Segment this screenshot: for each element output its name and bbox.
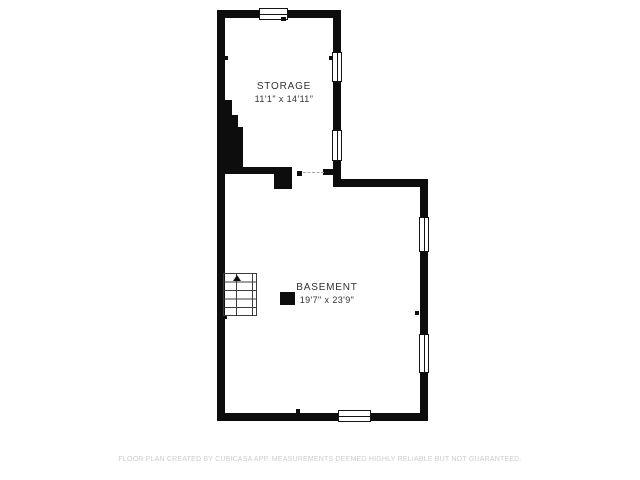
storage-room-dimensions: 11'1" x 14'11"	[224, 94, 344, 104]
storage-room-name: STORAGE	[224, 82, 344, 92]
disclaimer-text: FLOOR PLAN CREATED BY CUBICASA APP. MEAS…	[0, 456, 640, 463]
storage-room-label: STORAGE 11'1" x 14'11"	[224, 82, 344, 104]
wall-tick-left	[225, 56, 228, 60]
basement-window-right-upper-icon	[419, 217, 429, 252]
wall-basement-top	[333, 179, 428, 187]
wall-tick-bottom	[296, 409, 300, 413]
floor-plan: STORAGE 11'1" x 14'11" BASEMENT 19'7" x …	[0, 0, 640, 480]
chimney-step-1	[225, 100, 232, 167]
basement-room-dimensions: 19'7" x 23'9"	[267, 295, 387, 305]
wall-door-end-cap	[323, 169, 333, 175]
stairs-right-edge-line	[252, 274, 253, 315]
wall-left	[217, 10, 225, 421]
wall-tick-storage-right	[329, 56, 333, 60]
wall-storage-bottom	[217, 167, 275, 174]
wall-basement-bottom	[217, 413, 428, 421]
basement-window-bottom-icon	[338, 410, 371, 422]
chimney-step-3	[238, 127, 243, 167]
storage-window-right-lower-icon	[332, 130, 342, 161]
stairs-up-arrow-icon	[233, 275, 241, 281]
storage-window-right-upper-icon	[332, 52, 342, 82]
basement-room-label: BASEMENT 19'7" x 23'9"	[267, 283, 387, 305]
wall-basement-right	[420, 179, 428, 421]
wall-tick-top	[281, 17, 286, 21]
wall-pillar	[274, 167, 292, 189]
wall-tick-basement-right	[415, 311, 419, 315]
door-opening-dot	[297, 171, 302, 176]
basement-window-right-lower-icon	[419, 334, 429, 373]
basement-room-name: BASEMENT	[267, 283, 387, 293]
stairs-symbol	[223, 273, 257, 316]
door-opening-dashed-line	[303, 172, 324, 173]
